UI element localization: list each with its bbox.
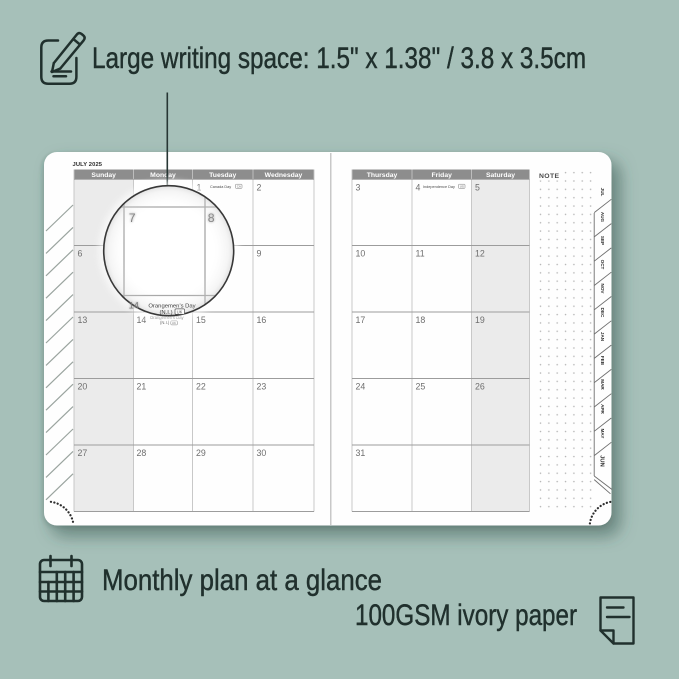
svg-text:16: 16	[257, 315, 267, 325]
svg-text:Thursday: Thursday	[367, 172, 398, 179]
svg-text:5: 5	[475, 183, 480, 193]
svg-text:6: 6	[78, 249, 83, 259]
svg-text:Independence Day: Independence Day	[423, 185, 455, 189]
svg-text:13: 13	[78, 315, 88, 325]
svg-text:MAR: MAR	[600, 379, 605, 390]
svg-text:20: 20	[78, 382, 88, 392]
svg-text:UK: UK	[172, 321, 176, 325]
svg-text:14: 14	[137, 315, 147, 325]
svg-text:29: 29	[196, 448, 206, 458]
svg-text:19: 19	[475, 315, 485, 325]
svg-text:4: 4	[416, 183, 421, 193]
svg-text:SEP: SEP	[600, 236, 605, 245]
svg-text:Saturday: Saturday	[486, 172, 515, 179]
svg-text:Sunday: Sunday	[91, 172, 116, 179]
svg-text:21: 21	[137, 382, 147, 392]
svg-text:11: 11	[416, 249, 425, 259]
svg-text:Tuesday: Tuesday	[209, 172, 236, 179]
svg-text:NOTE: NOTE	[539, 173, 560, 180]
svg-text:UK: UK	[177, 309, 183, 314]
svg-text:Wednesday: Wednesday	[265, 172, 303, 179]
svg-text:27: 27	[78, 448, 88, 458]
svg-text:Orangemen's Day: Orangemen's Day	[148, 304, 195, 310]
svg-text:APR: APR	[600, 404, 605, 414]
svg-text:31: 31	[356, 448, 366, 458]
svg-text:18: 18	[416, 315, 426, 325]
svg-text:3: 3	[356, 183, 361, 193]
svg-text:OCT: OCT	[600, 260, 605, 270]
svg-text:23: 23	[257, 382, 267, 392]
svg-text:25: 25	[416, 382, 426, 392]
svg-text:Monday: Monday	[150, 172, 176, 179]
svg-text:JULY 2025: JULY 2025	[73, 162, 103, 168]
svg-text:10: 10	[356, 249, 366, 259]
svg-text:14: 14	[129, 301, 139, 311]
svg-text:NOV: NOV	[600, 284, 605, 295]
svg-text:FEB: FEB	[600, 356, 605, 366]
svg-text:Canada Day: Canada Day	[210, 185, 231, 189]
svg-text:DEC: DEC	[600, 308, 605, 318]
svg-text:22: 22	[196, 382, 206, 392]
svg-text:12: 12	[475, 249, 485, 259]
svg-text:28: 28	[137, 448, 147, 458]
svg-text:JUL: JUL	[600, 188, 605, 197]
svg-text:JUN: JUN	[599, 455, 605, 467]
svg-text:Friday: Friday	[431, 172, 452, 179]
svg-text:15: 15	[196, 315, 206, 325]
svg-text:(N.I.): (N.I.)	[160, 320, 170, 325]
svg-text:CA: CA	[237, 185, 241, 189]
svg-text:26: 26	[475, 382, 485, 392]
svg-text:JAN: JAN	[600, 332, 605, 342]
svg-text:MAY: MAY	[600, 429, 605, 439]
svg-text:30: 30	[257, 448, 267, 458]
svg-text:US: US	[460, 185, 464, 189]
svg-text:2: 2	[257, 183, 262, 193]
svg-text:(N.I.): (N.I.)	[159, 310, 172, 316]
svg-text:9: 9	[257, 249, 262, 259]
svg-text:17: 17	[356, 315, 366, 325]
svg-text:AUG: AUG	[600, 212, 605, 223]
svg-text:24: 24	[356, 382, 366, 392]
